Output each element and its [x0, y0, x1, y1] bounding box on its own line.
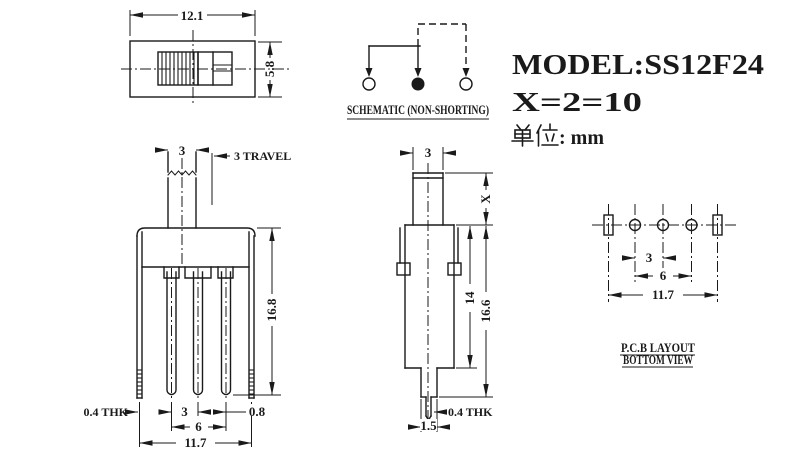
pcb-dimension-11-7: 11.7	[609, 287, 718, 302]
technical-drawing: 12.1 5.8 SCHEMATIC (NON-SHORTING) MODEL:…	[0, 0, 800, 460]
unit-suffix: : mm	[559, 127, 604, 149]
pcb-layout-view: 3 6 11.7 P.C.B LAYOUT BOTTOM VIEW	[592, 204, 738, 367]
side-view: 3 X	[397, 145, 493, 433]
housing-front	[137, 228, 255, 398]
front-view: 3 3 TRAVEL	[84, 143, 292, 450]
side-plate-ends	[137, 370, 254, 394]
model-number: MODEL:SS12F24	[512, 49, 764, 81]
terminal-filled-common	[412, 78, 425, 91]
dimension-1-5: 1.5	[409, 399, 449, 433]
pcb-dim-label-11-7: 11.7	[652, 287, 675, 302]
dim-label-knob-3: 3	[179, 143, 186, 158]
dim-label-width: 11.7	[184, 435, 207, 450]
terminal-pins-front	[167, 268, 231, 400]
dimension-travel: 3 TRAVEL	[212, 149, 291, 205]
dim-label-gap: 0.8	[249, 404, 266, 419]
dim-label-pitch: 3	[181, 404, 188, 419]
top-view: 12.1 5.8	[121, 8, 289, 106]
dimension-16-6: 16.6	[439, 226, 493, 397]
arrowhead-left-contact	[366, 68, 373, 77]
dimension-16-8: 16.8	[233, 228, 281, 395]
dim-label-travel: 3 TRAVEL	[234, 149, 291, 163]
dimension-14: 14	[456, 226, 477, 368]
dim-label-16-8: 16.8	[264, 298, 279, 321]
dim-label-pin-thk: 0.4 THK	[448, 405, 493, 419]
schematic-title: SCHEMATIC (NON-SHORTING)	[347, 103, 489, 117]
pcb-dim-label-3: 3	[646, 250, 653, 265]
dim-label-16-6: 16.6	[478, 299, 493, 322]
arrowhead-common-contact	[415, 68, 422, 77]
dim-label-thk: 0.4 THK	[84, 405, 129, 419]
dim-label-1-5: 1.5	[420, 418, 437, 433]
front-bottom-dimensions: 0.4 THK 3 0.8 6 11.7	[84, 402, 268, 450]
dim-label-14: 14	[462, 291, 477, 305]
dimension-x: X	[445, 173, 493, 225]
schematic-wire-dashed	[418, 24, 466, 66]
x-spec: X=2=10	[512, 87, 642, 117]
terminal-open-left	[363, 78, 375, 90]
drawing-sheet: 12.1 5.8 SCHEMATIC (NON-SHORTING) MODEL:…	[0, 0, 800, 460]
pcb-title-line2: BOTTOM VIEW	[623, 353, 693, 367]
dim-label-12-1: 12.1	[181, 8, 204, 23]
dim-label-x: X	[478, 194, 493, 204]
pcb-dimension-6: 6	[635, 268, 692, 283]
dimension-pin-thk: 0.4 THK	[434, 405, 493, 419]
pcb-dim-label-6: 6	[660, 268, 667, 283]
dim-label-5-8: 5.8	[262, 60, 277, 77]
schematic-view: SCHEMATIC (NON-SHORTING)	[347, 24, 489, 119]
terminal-open-right	[460, 78, 472, 90]
housing-side	[397, 225, 461, 420]
unit-label-hanzi	[512, 124, 558, 146]
knob-side	[413, 173, 443, 225]
title-block: MODEL:SS12F24 X=2=10 : mm	[512, 49, 764, 149]
dim-label-span: 6	[195, 419, 202, 434]
dimension-knob-3: 3	[156, 143, 208, 158]
arrowhead-right-contact	[463, 68, 470, 77]
pcb-dimension-3: 3	[623, 250, 675, 265]
dim-label-knob-side-3: 3	[425, 145, 432, 160]
